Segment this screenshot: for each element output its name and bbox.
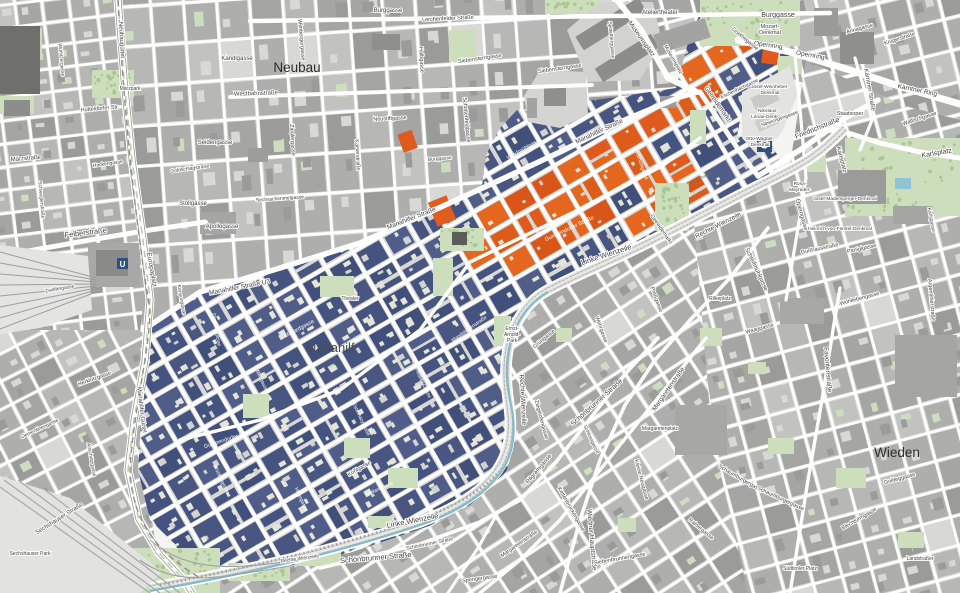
svg-text:Burggasse: Burggasse (761, 12, 795, 19)
svg-text:Südtiroler Platz: Südtiroler Platz (783, 566, 817, 572)
svg-text:Landstraßer: Landstraßer (907, 556, 934, 562)
svg-text:Wieden: Wieden (874, 445, 920, 460)
svg-text:Mayreder-: Mayreder- (789, 187, 811, 193)
svg-text:Park: Park (507, 338, 518, 344)
svg-text:Margaretenplatz: Margaretenplatz (642, 426, 679, 432)
svg-text:Rilkeplatz: Rilkeplatz (709, 296, 731, 302)
svg-text:Sechshauser Park: Sechshauser Park (10, 551, 51, 557)
svg-text:Denkmal: Denkmal (761, 90, 780, 96)
svg-text:Neubau: Neubau (273, 60, 320, 75)
svg-text:Burggasse: Burggasse (374, 8, 403, 14)
svg-text:Märzpark: Märzpark (120, 86, 141, 92)
svg-text:Apollogasse: Apollogasse (206, 224, 239, 230)
svg-text:Staatsoper: Staatsoper (837, 111, 864, 117)
svg-text:Otto-Wagner-: Otto-Wagner- (746, 136, 775, 142)
svg-text:Rosa-: Rosa- (794, 181, 807, 187)
svg-text:Mariahilf: Mariahilf (305, 340, 355, 355)
svg-text:Stollgasse: Stollgasse (179, 201, 207, 207)
svg-text:Josef-Weinheber-: Josef-Weinheber- (751, 84, 789, 90)
svg-text:Josef-Madersperger-Denkmal: Josef-Madersperger-Denkmal (813, 196, 876, 202)
svg-text:Seidengasse: Seidengasse (198, 140, 233, 146)
svg-text:Denkmal: Denkmal (759, 30, 781, 36)
svg-text:U: U (120, 260, 126, 269)
svg-text:Kandlgasse: Kandlgasse (221, 56, 253, 62)
svg-text:Denkmal: Denkmal (751, 142, 770, 148)
svg-text:Heinrich-von-Ferstel-Denkmal: Heinrich-von-Ferstel-Denkmal (808, 226, 872, 232)
svg-text:Nikolaus-: Nikolaus- (758, 108, 778, 114)
svg-text:Ateliertheater: Ateliertheater (642, 10, 678, 16)
svg-text:Theater: Theater (341, 296, 359, 302)
